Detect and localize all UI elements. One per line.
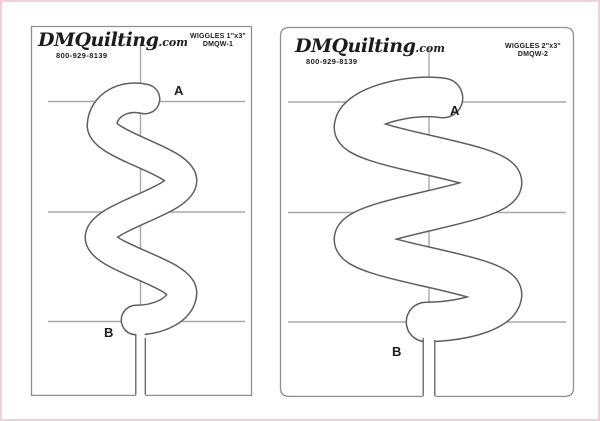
model-number: DMQW-1 bbox=[187, 41, 249, 49]
point-label-a: A bbox=[450, 104, 459, 117]
templates-line-art bbox=[2, 2, 600, 421]
product-label-block: WIGGLES 2"x3" DMQW-2 bbox=[498, 43, 568, 60]
brand-domain-suffix: .com bbox=[415, 42, 445, 55]
brand-name: DMQuilting bbox=[295, 35, 415, 57]
exit-slot-gap bbox=[136, 320, 144, 399]
exit-slot-gap bbox=[424, 322, 434, 400]
model-number: DMQW-2 bbox=[498, 51, 568, 59]
point-label-b: B bbox=[392, 345, 401, 358]
phone-number: 800-929-8139 bbox=[306, 57, 358, 66]
brand-name: DMQuilting bbox=[38, 29, 158, 51]
product-name: WIGGLES 2"x3" bbox=[498, 43, 568, 51]
brand-logo: DMQuilting.com bbox=[38, 31, 188, 50]
template-dmqw2-graphics bbox=[281, 28, 574, 401]
brand-logo: DMQuilting.com bbox=[295, 37, 445, 56]
product-name: WIGGLES 1"x3" bbox=[187, 33, 249, 41]
product-label-block: WIGGLES 1"x3" DMQW-1 bbox=[187, 33, 249, 50]
template-dmqw1-graphics bbox=[32, 27, 252, 400]
point-label-a: A bbox=[174, 84, 183, 97]
phone-number: 800-929-8139 bbox=[56, 51, 108, 60]
wiggle-channel-interior bbox=[354, 97, 502, 322]
template-sheet-photo: DMQuilting.com 800-929-8139 WIGGLES 1"x3… bbox=[0, 0, 600, 421]
point-label-b: B bbox=[104, 326, 113, 339]
brand-domain-suffix: .com bbox=[158, 36, 188, 49]
